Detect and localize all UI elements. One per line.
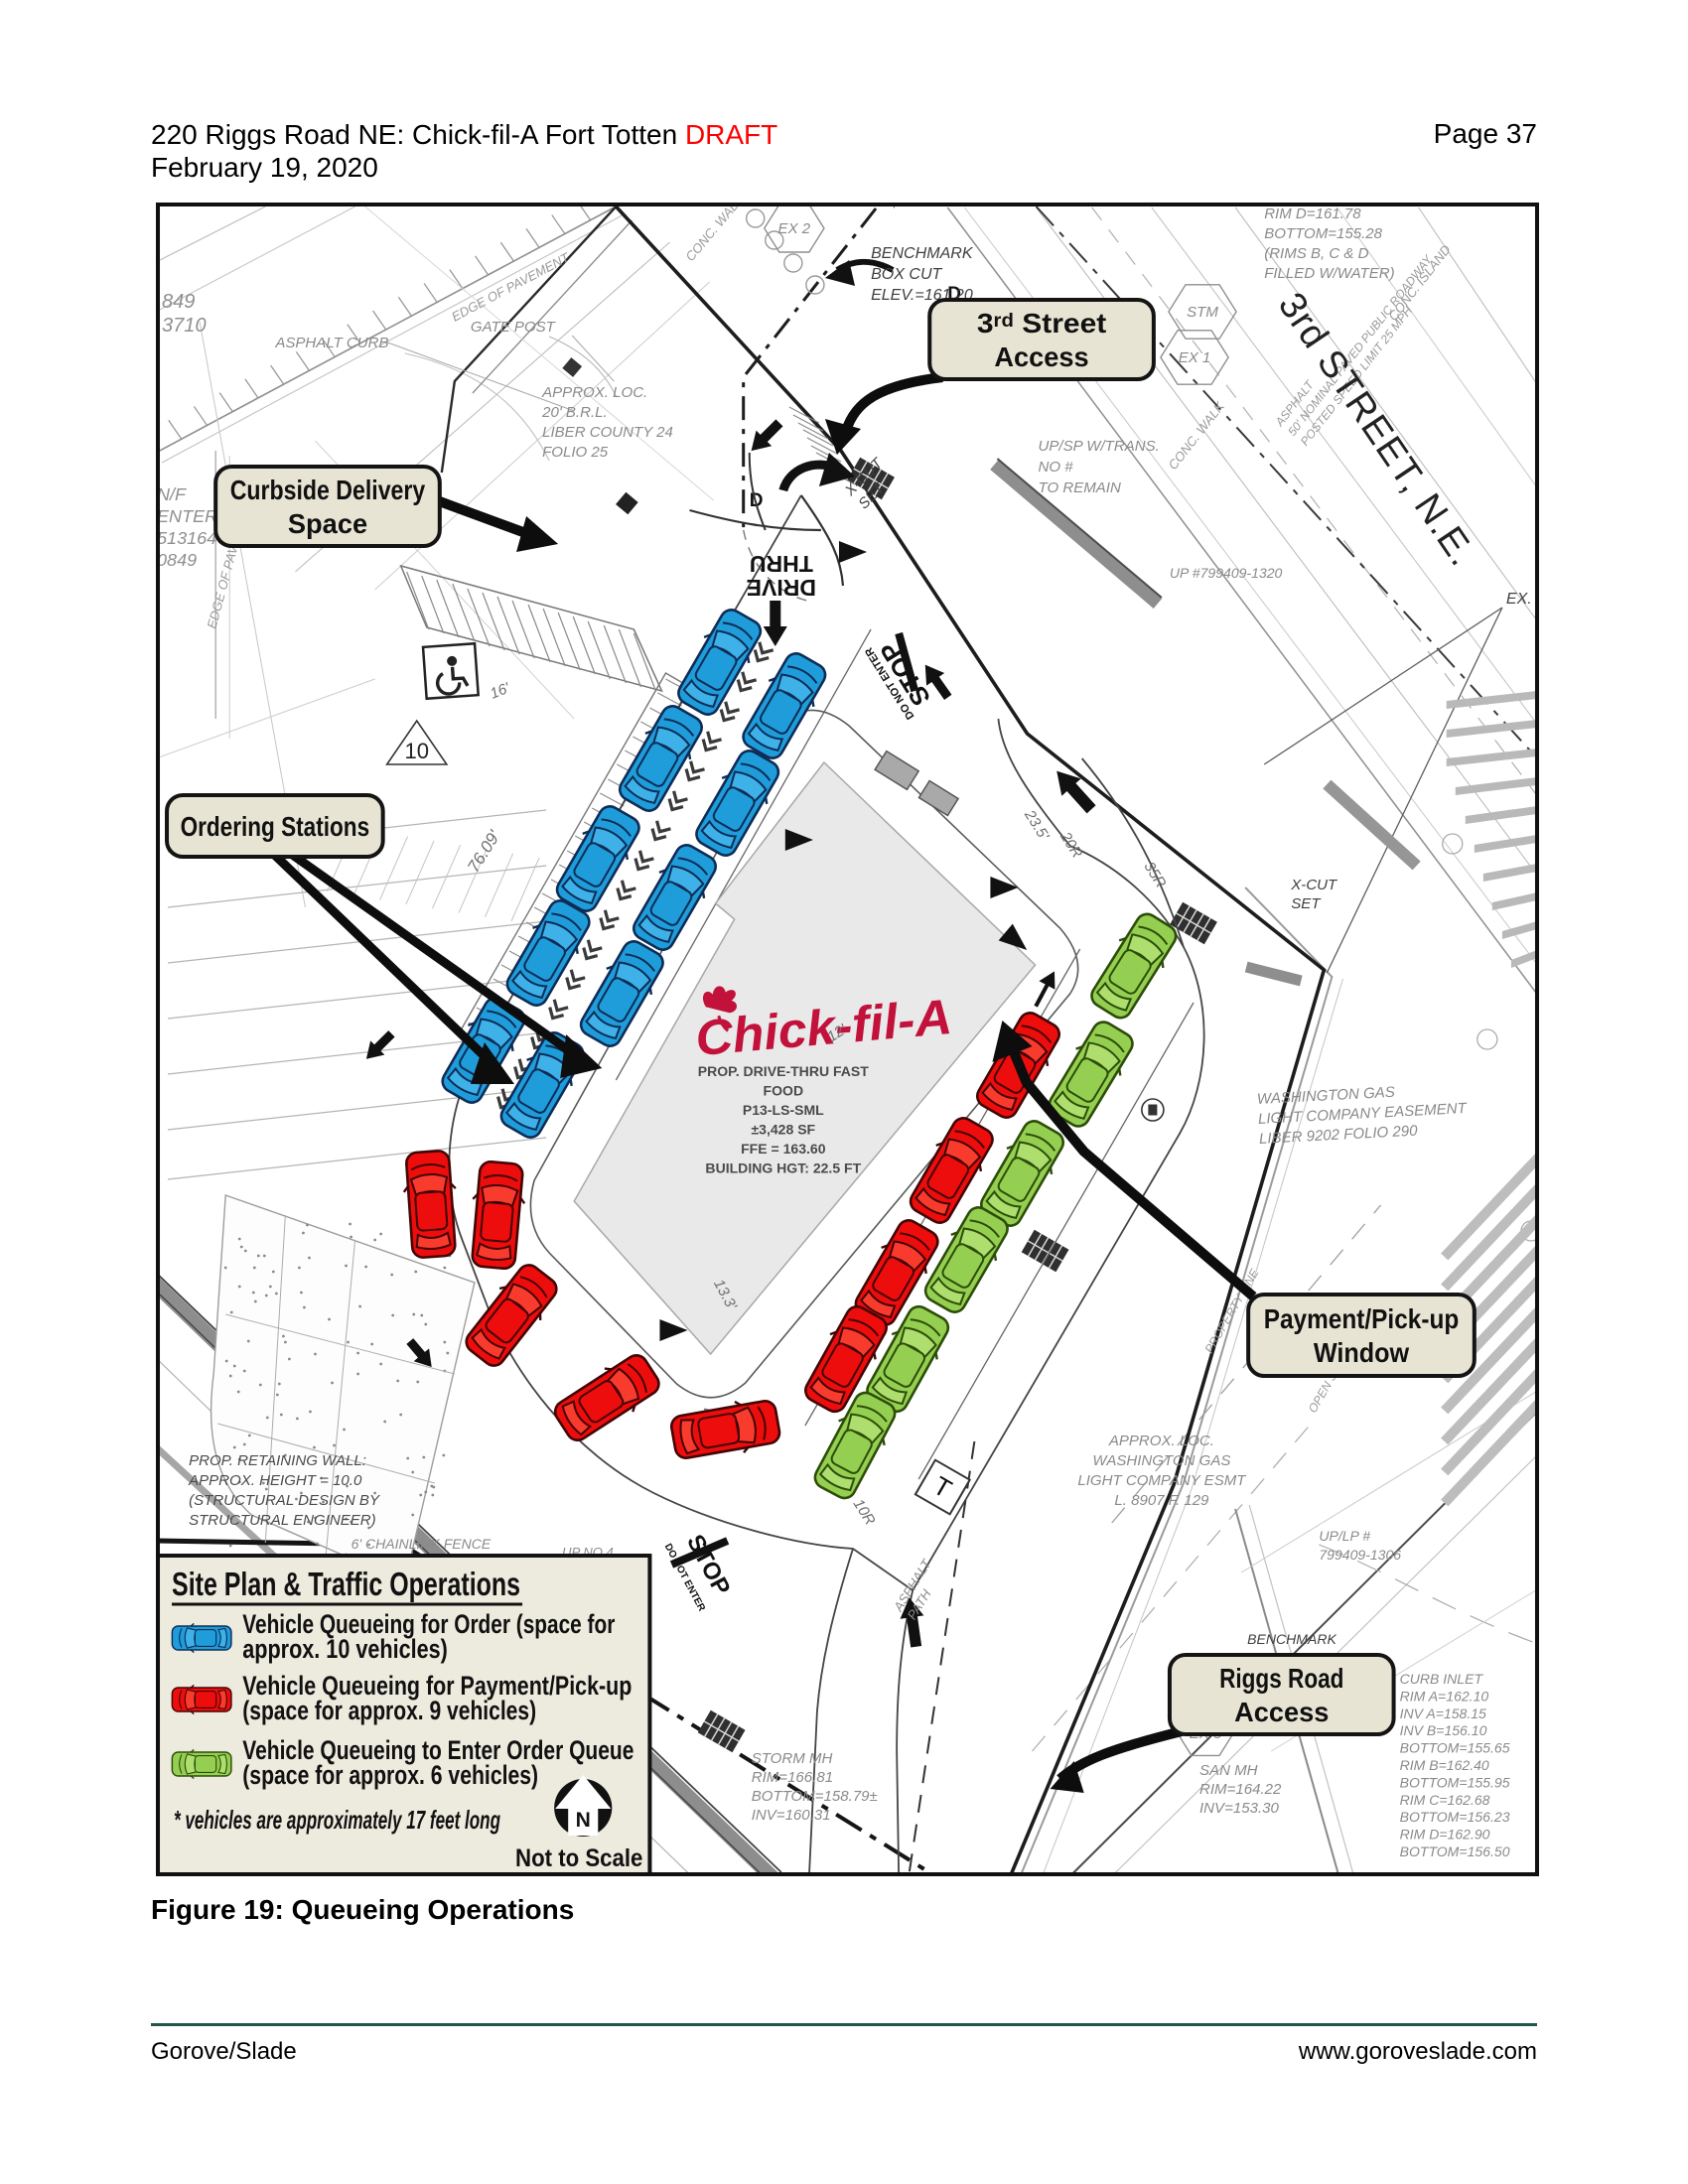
svg-text:Access: Access <box>1234 1697 1329 1727</box>
svg-text:EX 2: EX 2 <box>778 220 811 237</box>
svg-text:BOTTOM=155.95: BOTTOM=155.95 <box>1400 1774 1510 1790</box>
svg-text:APPROX. LOC.: APPROX. LOC. <box>1108 1433 1214 1449</box>
svg-text:BOTTOM=158.79±: BOTTOM=158.79± <box>752 1788 878 1805</box>
svg-text:DRIVE: DRIVE <box>747 575 816 601</box>
svg-text:APPROX. HEIGHT = 10.0: APPROX. HEIGHT = 10.0 <box>188 1472 362 1489</box>
svg-text:FILLED W/WATER): FILLED W/WATER) <box>1264 265 1394 282</box>
svg-text:N/F: N/F <box>157 484 187 504</box>
svg-text:±3,428 SF: ±3,428 SF <box>751 1122 815 1138</box>
svg-text:RIM D=162.90: RIM D=162.90 <box>1400 1827 1490 1843</box>
svg-text:Curbside Delivery: Curbside Delivery <box>230 475 426 505</box>
svg-text:849: 849 <box>162 291 195 313</box>
svg-text:BOTTOM=155.28: BOTTOM=155.28 <box>1264 225 1382 242</box>
svg-text:BUILDING HGT: 22.5 FT: BUILDING HGT: 22.5 FT <box>705 1160 861 1176</box>
svg-text:PROP. DRIVE-THRU FAST: PROP. DRIVE-THRU FAST <box>698 1063 870 1079</box>
svg-text:N: N <box>576 1809 591 1832</box>
svg-text:WASHINGTON GAS: WASHINGTON GAS <box>1092 1452 1230 1469</box>
svg-text:NO #: NO # <box>1039 459 1074 476</box>
svg-text:ASPHALT CURB: ASPHALT CURB <box>274 335 388 351</box>
svg-text:UP/SP W/TRANS.: UP/SP W/TRANS. <box>1039 438 1160 455</box>
svg-text:6' CHAINLINK FENCE: 6' CHAINLINK FENCE <box>352 1536 492 1552</box>
svg-text:Ordering Stations: Ordering Stations <box>181 811 370 842</box>
svg-text:APPROX. LOC.: APPROX. LOC. <box>541 384 647 401</box>
svg-text:Space: Space <box>288 508 367 539</box>
svg-text:RIM B=162.40: RIM B=162.40 <box>1400 1757 1489 1773</box>
svg-text:(space for approx. 9 vehicles): (space for approx. 9 vehicles) <box>242 1696 536 1725</box>
svg-text:10: 10 <box>404 739 429 763</box>
svg-text:Payment/Pick-up: Payment/Pick-up <box>1264 1303 1460 1334</box>
svg-text:Access: Access <box>994 341 1088 372</box>
svg-text:RIM A=162.10: RIM A=162.10 <box>1400 1688 1489 1704</box>
svg-text:FOLIO 25: FOLIO 25 <box>542 444 609 461</box>
svg-text:SAN MH: SAN MH <box>1199 1762 1258 1779</box>
svg-text:L. 8907 F. 129: L. 8907 F. 129 <box>1114 1492 1209 1509</box>
svg-text:approx. 10 vehicles): approx. 10 vehicles) <box>242 1634 448 1664</box>
svg-text:SET: SET <box>1291 895 1322 912</box>
svg-text:STM: STM <box>1187 304 1218 321</box>
svg-text:X-CUT: X-CUT <box>1290 877 1338 893</box>
svg-text:STORM MH: STORM MH <box>752 1750 833 1767</box>
svg-text:BENCHMARK: BENCHMARK <box>1247 1631 1336 1647</box>
svg-text:INV B=156.10: INV B=156.10 <box>1400 1722 1487 1738</box>
svg-text:INV=160.31: INV=160.31 <box>752 1807 831 1824</box>
svg-text:(space for approx. 6 vehicles): (space for approx. 6 vehicles) <box>242 1760 538 1790</box>
svg-text:3710: 3710 <box>162 315 207 337</box>
svg-text:Window: Window <box>1314 1337 1409 1368</box>
svg-text:RIM=164.22: RIM=164.22 <box>1199 1781 1282 1798</box>
svg-text:TO REMAIN: TO REMAIN <box>1039 479 1121 496</box>
svg-text:FOOD: FOOD <box>764 1083 804 1099</box>
svg-text:PROP. RETAINING WALL:: PROP. RETAINING WALL: <box>189 1452 366 1469</box>
svg-text:FFE = 163.60: FFE = 163.60 <box>741 1141 826 1157</box>
svg-text:INV=153.30: INV=153.30 <box>1199 1800 1279 1817</box>
svg-text:RIM=166.81: RIM=166.81 <box>752 1769 833 1786</box>
svg-text:UP #799409-1320: UP #799409-1320 <box>1170 565 1283 581</box>
svg-text:EX.: EX. <box>1506 590 1532 608</box>
svg-text:BOTTOM=156.23: BOTTOM=156.23 <box>1400 1809 1510 1825</box>
svg-text:* vehicles are approximately 1: * vehicles are approximately 17 feet lon… <box>174 1805 500 1835</box>
svg-text:P13-LS-SML: P13-LS-SML <box>743 1102 824 1118</box>
svg-text:Site Plan & Traffic Operations: Site Plan & Traffic Operations <box>172 1567 520 1603</box>
svg-text:LIBER COUNTY 24: LIBER COUNTY 24 <box>542 424 673 441</box>
svg-text:BENCHMARK: BENCHMARK <box>871 244 974 262</box>
svg-text:RIM C=162.68: RIM C=162.68 <box>1400 1792 1490 1808</box>
svg-text:EX 1: EX 1 <box>1179 349 1211 366</box>
svg-text:THRU: THRU <box>750 551 813 577</box>
svg-text:INV A=158.15: INV A=158.15 <box>1400 1706 1486 1721</box>
svg-text:(RIMS B, C & D: (RIMS B, C & D <box>1264 245 1368 262</box>
svg-text:RIM D=161.78: RIM D=161.78 <box>1264 205 1361 222</box>
svg-text:CURB INLET: CURB INLET <box>1400 1671 1484 1687</box>
svg-text:GATE POST: GATE POST <box>471 319 557 336</box>
svg-text:(STRUCTURAL DESIGN BY: (STRUCTURAL DESIGN BY <box>189 1492 380 1509</box>
svg-text:20' B.R.L.: 20' B.R.L. <box>541 404 608 421</box>
svg-text:STRUCTURAL ENGINEER): STRUCTURAL ENGINEER) <box>189 1512 376 1529</box>
svg-text:LIGHT COMPANY ESMT: LIGHT COMPANY ESMT <box>1077 1472 1247 1489</box>
svg-text:Riggs Road: Riggs Road <box>1219 1663 1343 1694</box>
svg-text:BOTTOM=156.50: BOTTOM=156.50 <box>1400 1843 1510 1859</box>
svg-text:0849: 0849 <box>157 550 197 570</box>
svg-text:Not to Scale: Not to Scale <box>515 1844 642 1872</box>
svg-text:UP/LP #: UP/LP # <box>1319 1528 1370 1544</box>
svg-text:BOTTOM=155.65: BOTTOM=155.65 <box>1400 1740 1510 1756</box>
svg-text:799409-1306: 799409-1306 <box>1319 1547 1401 1563</box>
svg-text:BOX CUT: BOX CUT <box>871 265 943 283</box>
